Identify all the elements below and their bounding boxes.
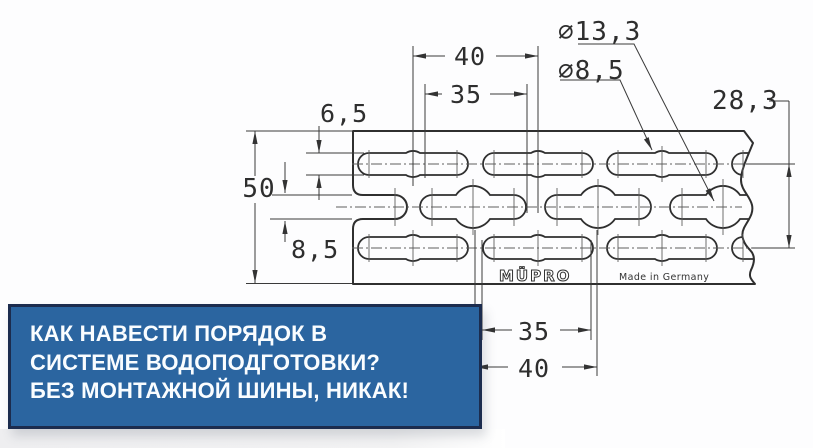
dim-slot-length-top: 35 bbox=[450, 80, 482, 109]
screenshot-root: 40 35 ⌀13,3 ⌀8,5 28,3 6,5 50 8,5 35 40 M… bbox=[0, 0, 813, 448]
dim-pitch-bottom: 40 bbox=[518, 354, 550, 383]
dim-slot-width: 8,5 bbox=[291, 235, 339, 264]
banner-line-2: СИСТЕМЕ ВОДОПОДГОТОВКИ? bbox=[30, 349, 479, 378]
dim-edge-offset: 6,5 bbox=[320, 99, 368, 128]
dim-row-spacing: 28,3 bbox=[712, 86, 779, 116]
dim-height: 50 bbox=[242, 174, 275, 204]
banner-line-3: БЕЗ МОНТАЖНОЙ ШИНЫ, НИКАК! bbox=[30, 377, 479, 406]
brand-logo: MÜPRO bbox=[499, 266, 571, 285]
dim-slot-length-bottom: 35 bbox=[518, 317, 550, 346]
centerlines bbox=[336, 146, 757, 266]
banner-line-1: КАК НАВЕСТИ ПОРЯДОК В bbox=[30, 320, 479, 349]
background-floor-strip bbox=[0, 429, 505, 448]
dim-hole-small: ⌀8,5 bbox=[558, 56, 625, 86]
dim-hole-large: ⌀13,3 bbox=[558, 17, 641, 47]
origin-label: Made in Germany bbox=[619, 272, 709, 283]
promo-banner: КАК НАВЕСТИ ПОРЯДОК В СИСТЕМЕ ВОДОПОДГОТ… bbox=[8, 304, 482, 429]
dim-pitch-top: 40 bbox=[454, 42, 486, 71]
